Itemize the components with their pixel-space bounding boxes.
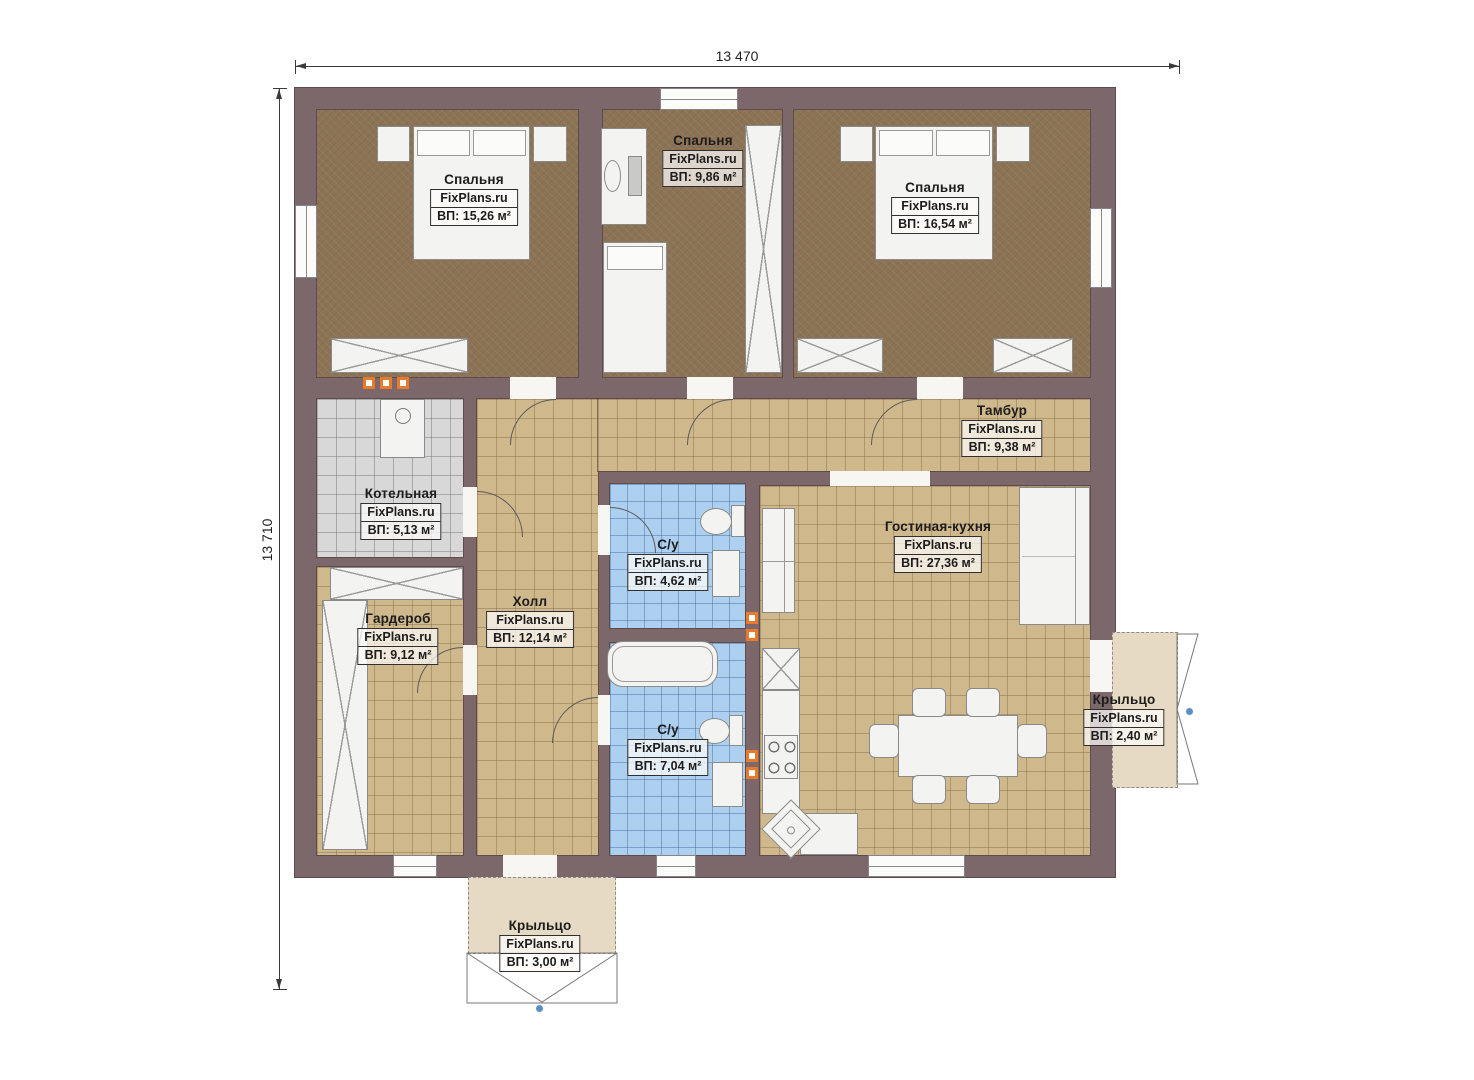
room-name: Холл: [513, 594, 548, 609]
watermark: FixPlans.ru: [892, 198, 978, 216]
nightstand: [840, 126, 873, 162]
porch-right-marker: [1186, 708, 1193, 715]
dining-chair: [869, 724, 899, 758]
room-label-living-kitchen: Гостиная-кухня FixPlans.ru ВП: 27,36 м²: [885, 519, 991, 573]
wardrobe-bedroom3-right: [993, 338, 1073, 373]
room-name: Спальня: [905, 180, 965, 195]
marker-orange: [746, 612, 758, 624]
toilet-tank-bath-small: [731, 505, 745, 537]
pillow: [936, 130, 990, 156]
dining-chair: [912, 688, 946, 717]
room-label-bedroom2: Спальня FixPlans.ru ВП: 9,86 м²: [662, 133, 743, 187]
bathtub: [607, 641, 718, 687]
marker-orange: [746, 629, 758, 641]
closet-between-bedrooms: [745, 125, 782, 373]
room-area: ВП: 16,54 м²: [892, 216, 978, 233]
porch-bottom-marker: [536, 1005, 543, 1012]
wardrobe-bedroom1: [331, 338, 468, 373]
room-area: ВП: 4,62 м²: [628, 573, 707, 590]
room-name: Крыльцо: [1093, 692, 1156, 707]
room-label-wardrobe: Гардероб FixPlans.ru ВП: 9,12 м²: [357, 611, 438, 665]
floor-plan: 13 470 13 710: [0, 0, 1474, 1080]
marker-orange: [746, 767, 758, 779]
room-name: Гардероб: [365, 611, 430, 626]
dimension-line-left: [279, 88, 280, 990]
room-name: С/у: [657, 722, 679, 737]
dimension-line-top: [295, 66, 1180, 67]
room-area: ВП: 27,36 м²: [895, 555, 981, 572]
pillow: [879, 130, 933, 156]
pillow: [417, 130, 470, 156]
room-label-bedroom3: Спальня FixPlans.ru ВП: 16,54 м²: [891, 180, 979, 234]
door-gap-bedroom2: [687, 377, 733, 399]
dining-chair: [912, 775, 946, 804]
watermark: FixPlans.ru: [628, 555, 707, 573]
marker-orange: [380, 377, 392, 389]
room-label-porch-bottom: Крыльцо FixPlans.ru ВП: 3,00 м²: [499, 918, 580, 972]
nightstand: [533, 126, 567, 162]
watermark: FixPlans.ru: [895, 537, 981, 555]
stove: [764, 735, 798, 779]
watermark: FixPlans.ru: [487, 612, 573, 630]
room-area: ВП: 15,26 м²: [431, 208, 517, 225]
room-label-boiler: Котельная FixPlans.ru ВП: 5,13 м²: [360, 486, 441, 540]
door-gap-bedroom1: [510, 377, 556, 399]
room-name: Крыльцо: [509, 918, 572, 933]
dining-chair: [1017, 724, 1047, 758]
watermark: FixPlans.ru: [962, 421, 1041, 439]
window-wardrobe-bottom: [393, 855, 437, 877]
watermark: FixPlans.ru: [1084, 710, 1163, 728]
window-bath-large-bottom: [656, 855, 696, 877]
watermark: FixPlans.ru: [358, 629, 437, 647]
room-name: С/у: [657, 537, 679, 552]
room-area: ВП: 5,13 м²: [361, 522, 440, 539]
door-gap-wardrobe: [463, 645, 477, 695]
room-label-hall: Холл FixPlans.ru ВП: 12,14 м²: [486, 594, 574, 648]
room-name: Котельная: [365, 486, 437, 501]
desk-chair-bedroom2: [604, 160, 621, 192]
room-name: Тамбур: [977, 403, 1027, 418]
door-gap-boiler: [463, 487, 477, 537]
boiler-unit: [380, 399, 425, 458]
window-bedroom2-top: [660, 88, 738, 110]
sofa: [1019, 487, 1090, 625]
room-label-bedroom1: Спальня FixPlans.ru ВП: 15,26 м²: [430, 172, 518, 226]
dining-chair: [966, 775, 1000, 804]
watermark: FixPlans.ru: [628, 740, 707, 758]
fridge: [762, 508, 795, 613]
window-bedroom3-right: [1090, 208, 1112, 288]
bed-single-bedroom2: [603, 242, 667, 373]
door-gap-bedroom3: [917, 377, 963, 399]
opening-tambour-living: [830, 471, 930, 486]
room-name: Спальня: [673, 133, 733, 148]
door-gap-bath-small: [598, 505, 610, 555]
marker-orange: [363, 377, 375, 389]
room-name: Гостиная-кухня: [885, 519, 991, 534]
room-label-porch-right: Крыльцо FixPlans.ru ВП: 2,40 м²: [1083, 692, 1164, 746]
dimension-label-left: 13 710: [257, 519, 277, 562]
window-bedroom1-left: [295, 205, 317, 278]
marker-orange: [397, 377, 409, 389]
desk-monitor-bedroom2: [628, 156, 642, 196]
watermark: FixPlans.ru: [431, 190, 517, 208]
room-area: ВП: 7,04 м²: [628, 758, 707, 775]
window-living-bottom: [868, 855, 965, 877]
kitchen-counter-vent: [762, 648, 800, 690]
nightstand: [377, 126, 410, 162]
door-gap-bath-large: [598, 695, 610, 745]
room-area: ВП: 2,40 м²: [1084, 728, 1163, 745]
sink-bath-small: [712, 550, 740, 597]
marker-orange: [746, 750, 758, 762]
room-name: Спальня: [444, 172, 504, 187]
room-area: ВП: 12,14 м²: [487, 630, 573, 647]
watermark: FixPlans.ru: [663, 151, 742, 169]
pillow: [473, 130, 526, 156]
room-label-tambour: Тамбур FixPlans.ru ВП: 9,38 м²: [961, 403, 1042, 457]
pillow: [607, 246, 663, 270]
room-label-bath-small: С/у FixPlans.ru ВП: 4,62 м²: [627, 537, 708, 591]
room-label-bath-large: С/у FixPlans.ru ВП: 7,04 м²: [627, 722, 708, 776]
wardrobe-top: [330, 567, 463, 600]
toilet-tank-bath-large: [729, 715, 743, 746]
room-area: ВП: 9,86 м²: [663, 169, 742, 186]
dining-chair: [966, 688, 1000, 717]
wardrobe-bedroom3-left: [797, 338, 883, 373]
dining-table: [898, 715, 1018, 777]
watermark: FixPlans.ru: [500, 936, 579, 954]
nightstand: [996, 126, 1030, 162]
door-gap-porch-bottom: [503, 855, 557, 877]
sink-bath-large: [712, 762, 743, 807]
toilet-bath-small: [700, 508, 732, 535]
room-area: ВП: 3,00 м²: [500, 954, 579, 971]
watermark: FixPlans.ru: [361, 504, 440, 522]
dimension-label-top: 13 470: [712, 48, 763, 64]
room-area: ВП: 9,12 м²: [358, 647, 437, 664]
room-area: ВП: 9,38 м²: [962, 439, 1041, 456]
